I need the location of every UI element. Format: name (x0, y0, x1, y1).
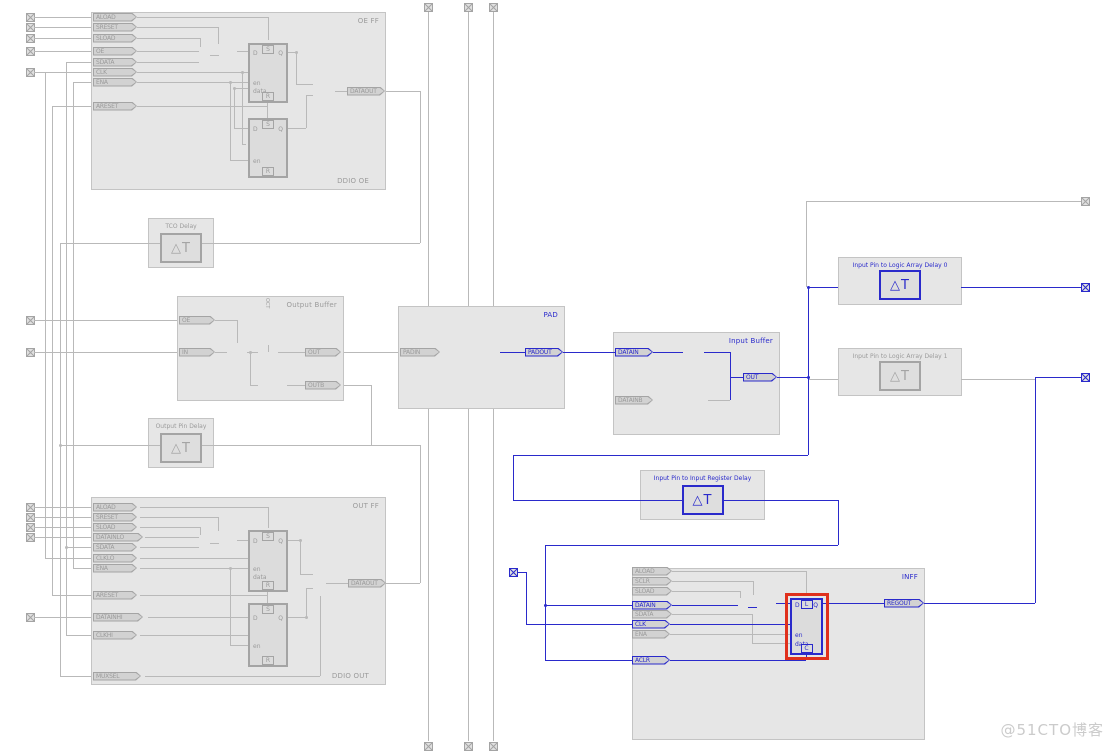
signal-label-text: ACLR (635, 656, 673, 665)
wire (137, 62, 199, 63)
dff-pin-q: Q (278, 127, 283, 133)
dff-oe-ff2[interactable]: DQenSR (248, 118, 288, 178)
signal-label-text: DATAIN (618, 348, 656, 357)
dff-pin-d: D (253, 127, 258, 133)
wire (545, 605, 632, 606)
wire (230, 568, 231, 645)
signal-label-sload[interactable]: SLOAD (93, 34, 137, 43)
signal-label-text: CLK (96, 68, 140, 77)
signal-label-ena[interactable]: ENA (632, 630, 670, 639)
wire (287, 385, 305, 386)
signal-label-text: ENA (96, 78, 140, 87)
signal-label-sdata[interactable]: SDATA (93, 58, 137, 67)
wire (961, 287, 1081, 288)
wire (34, 507, 91, 508)
wire (670, 634, 790, 635)
signal-label-datainhi[interactable]: DATAINHI (93, 613, 143, 622)
signal-label-areset[interactable]: ARESET (93, 102, 137, 111)
signal-label-out[interactable]: OUT (743, 373, 777, 382)
io-port-symbol[interactable] (424, 742, 433, 751)
wire (34, 527, 91, 528)
signal-label-aload[interactable]: ALOAD (93, 13, 137, 22)
delay-symbol-box: △T (160, 433, 202, 463)
wire (300, 540, 301, 574)
wire (513, 500, 838, 501)
signal-label-oe[interactable]: OE (93, 47, 137, 56)
wire (137, 38, 200, 39)
signal-label-text: OE (96, 47, 140, 56)
signal-label-aclr[interactable]: ACLR (632, 656, 670, 665)
dff-clear-box: R (262, 92, 274, 101)
io-port-symbol[interactable] (1081, 197, 1090, 206)
wire (237, 540, 248, 541)
wire (288, 617, 306, 618)
wire (748, 607, 757, 608)
wire-junction (65, 546, 68, 549)
wire (137, 27, 218, 28)
wire (242, 144, 246, 145)
wire (73, 82, 74, 568)
wire (296, 84, 313, 85)
wire (52, 106, 53, 595)
wire (140, 517, 218, 518)
wire (34, 17, 91, 18)
wire (517, 572, 526, 573)
wire (730, 352, 731, 400)
io-port-symbol[interactable] (424, 3, 433, 12)
signal-label-padin[interactable]: PADIN (400, 348, 440, 357)
wire (137, 51, 199, 52)
wire (234, 128, 248, 129)
wire (672, 571, 806, 572)
wire (230, 160, 248, 161)
wire (806, 201, 807, 287)
delay-title: Input Pin to Logic Array Delay 1 (839, 353, 961, 360)
wire-junction (229, 567, 232, 570)
signal-label-datainb[interactable]: DATAINB (615, 396, 653, 405)
wire-junction (229, 81, 232, 84)
wire (237, 320, 238, 343)
signal-label-out[interactable]: OUT (305, 348, 341, 357)
io-port-symbol[interactable] (464, 3, 473, 12)
wire (823, 603, 884, 604)
io-port-symbol[interactable] (489, 3, 498, 12)
wire (215, 320, 237, 321)
wire (237, 51, 248, 52)
block-title: OE FF (358, 17, 379, 25)
signal-label-clk[interactable]: CLK (93, 68, 137, 77)
delay-symbol: △T (171, 441, 191, 456)
dff-pin-en: en (253, 81, 261, 87)
signal-label-dataout[interactable]: DATAOUT (348, 579, 386, 588)
wire-junction (295, 51, 298, 54)
delay-title: TCO Delay (149, 223, 213, 230)
signal-label-text: SLOAD (96, 34, 140, 43)
wire (653, 352, 683, 353)
wire (60, 676, 91, 677)
wire (66, 62, 91, 63)
dff-clear-box: R (262, 167, 274, 176)
signal-label-clk[interactable]: CLK (632, 620, 670, 629)
wire (145, 537, 199, 538)
wire (45, 558, 91, 559)
delay-symbol-box: △T (160, 233, 202, 263)
signal-label-text: ARESET (96, 102, 140, 111)
signal-label-text: DATAINLO (96, 533, 146, 542)
wire (306, 588, 307, 617)
signal-label-text: PADOUT (528, 348, 566, 357)
signal-label-text: ALOAD (96, 503, 140, 512)
signal-label-clklo[interactable]: CLKLO (93, 554, 137, 563)
wire (961, 379, 1035, 380)
wire (420, 91, 421, 243)
signal-label-text: CLKLO (96, 554, 140, 563)
wire (52, 106, 91, 107)
io-port-symbol[interactable] (1081, 373, 1090, 382)
wire (808, 377, 809, 455)
wire (66, 547, 91, 548)
wire (34, 27, 91, 28)
signal-label-text: OUTB (308, 381, 344, 390)
signal-label-sreset[interactable]: SRESET (93, 23, 137, 32)
wire (344, 385, 371, 386)
signal-label-sload[interactable]: SLOAD (632, 587, 672, 596)
wire (140, 635, 250, 636)
signal-label-areset[interactable]: ARESET (93, 591, 137, 600)
signal-label-text: SDATA (635, 610, 675, 619)
wire (140, 527, 200, 528)
signal-label-text: DATAINHI (96, 613, 146, 622)
wire (52, 595, 91, 596)
signal-label-padout[interactable]: PADOUT (525, 348, 563, 357)
signal-label-sdata[interactable]: SDATA (632, 610, 672, 619)
wire (526, 624, 632, 625)
wire (268, 17, 269, 40)
signal-label-outb[interactable]: OUTB (305, 381, 341, 390)
signal-label-datain[interactable]: DATAIN (615, 348, 653, 357)
wire (335, 91, 347, 92)
signal-label-ena[interactable]: ENA (93, 78, 137, 87)
wire (672, 591, 740, 592)
wire (545, 545, 838, 546)
signal-label-text: SLOAD (96, 523, 140, 532)
dff-out-ff1[interactable]: DQendataSR (248, 530, 288, 592)
signal-label-text: ENA (96, 564, 140, 573)
dff-set-box: S (262, 605, 274, 614)
signal-label-text: PADIN (403, 348, 443, 357)
wire (230, 645, 248, 646)
delay-title: Input Pin to Input Register Delay (641, 475, 764, 482)
wire-junction (59, 444, 62, 447)
wire (924, 603, 1035, 604)
signal-label-text: SRESET (96, 23, 140, 32)
wire (513, 455, 514, 500)
dff-pin-q: Q (278, 539, 283, 545)
block-subtitle: DDIO OUT (332, 672, 369, 680)
wire (140, 547, 199, 548)
io-port-symbol[interactable] (1081, 283, 1090, 292)
wire (752, 614, 753, 643)
wire (66, 635, 91, 636)
wire (808, 379, 838, 380)
schematic-canvas: @51CTO博客 OE FFDDIO OEOutput BufferPADInp… (0, 0, 1114, 752)
signal-label-text: SLOAD (635, 587, 675, 596)
wire-junction (305, 616, 308, 619)
wire (218, 517, 219, 531)
wire (234, 88, 248, 89)
signal-label-sload[interactable]: SLOAD (93, 523, 137, 532)
signal-label-text: DATAOUT (351, 579, 389, 588)
wire (34, 320, 177, 321)
dff-oe-ff1[interactable]: DQendataSR (248, 43, 288, 103)
signal-label-text: IN (182, 348, 218, 357)
wire (45, 72, 46, 558)
wire (137, 72, 248, 73)
dff-pin-d: D (253, 616, 258, 622)
wire (60, 243, 420, 244)
delay-symbol: △T (693, 493, 713, 508)
wire (838, 500, 839, 545)
dff-pin-q: Q (278, 51, 283, 57)
signal-label-text: CLK (635, 620, 673, 629)
wire (60, 243, 61, 676)
signal-label-datainlo[interactable]: DATAINLO (93, 533, 143, 542)
delay-symbol-box: △T (879, 270, 921, 300)
wire (306, 588, 313, 589)
wire (740, 591, 741, 598)
signal-label-text: DATAOUT (350, 87, 388, 96)
signal-label-text: SCLR (635, 577, 675, 586)
wire-junction (807, 286, 810, 289)
wire (420, 445, 421, 583)
wire (66, 62, 67, 635)
wire (306, 95, 307, 128)
wire (73, 568, 91, 569)
block-subtitle: DDIO OE (337, 177, 369, 185)
wire (140, 595, 267, 596)
wire-junction (299, 539, 302, 542)
signal-label-text: DATAINB (618, 396, 656, 405)
dff-set-box: S (262, 120, 274, 129)
signal-label-text: ALOAD (635, 567, 675, 576)
delay-symbol-box: △T (682, 485, 724, 515)
signal-label-text: CLKHI (96, 631, 140, 640)
dff-pin-en: en (253, 644, 261, 650)
wire (306, 95, 313, 96)
signal-label-regout[interactable]: REGOUT (884, 599, 924, 608)
wire (34, 617, 91, 618)
delay-symbol-box: △T (879, 361, 921, 391)
wire (145, 676, 320, 677)
wire-junction (544, 604, 547, 607)
delay-title: Input Pin to Logic Array Delay 0 (839, 262, 961, 269)
wire-junction (233, 87, 236, 90)
wire (326, 583, 348, 584)
wire (670, 660, 806, 661)
wire (230, 82, 231, 160)
wire (753, 581, 754, 595)
wire (386, 91, 420, 92)
oct-control-label: OCT (264, 298, 270, 308)
signal-label-ena[interactable]: ENA (93, 564, 137, 573)
wire (200, 38, 201, 47)
wire (200, 527, 201, 535)
signal-label-text: SDATA (96, 543, 140, 552)
block-title: Output Buffer (287, 301, 338, 309)
wire (806, 571, 807, 594)
wire (278, 352, 305, 353)
wire (218, 27, 219, 44)
dff-set-box: S (262, 45, 274, 54)
wire (34, 352, 177, 353)
signal-label-text: REGOUT (887, 599, 927, 608)
wire (777, 377, 808, 378)
wire (708, 400, 730, 401)
wire (344, 352, 398, 353)
wire (234, 88, 235, 128)
block-pad[interactable]: PAD (398, 306, 565, 409)
io-port-symbol[interactable] (464, 742, 473, 751)
block-inff[interactable]: INFF (632, 568, 925, 740)
signal-label-text: OE (182, 316, 218, 325)
wire (806, 201, 1081, 202)
wire (140, 507, 268, 508)
delay-symbol: △T (171, 241, 191, 256)
signal-label-text: OUT (308, 348, 344, 357)
block-title: OUT FF (353, 502, 379, 510)
dff-set-box: S (262, 532, 274, 541)
signal-label-text: SDATA (96, 58, 140, 67)
dff-pin-en: en (253, 159, 261, 165)
wire (73, 82, 91, 83)
wire (545, 545, 546, 660)
wire (137, 106, 267, 107)
signal-label-text: OUT (746, 373, 780, 382)
wire (34, 517, 91, 518)
block-title: INFF (902, 573, 918, 581)
wire-junction (241, 71, 244, 74)
wire (268, 345, 269, 352)
wire (137, 17, 268, 18)
signal-label-dataout[interactable]: DATAOUT (347, 87, 385, 96)
wire (808, 287, 838, 288)
wire (210, 55, 219, 56)
signal-label-text: ALOAD (96, 13, 140, 22)
wire (670, 624, 790, 625)
wire (1035, 377, 1036, 603)
signal-label-text: MUXSEL (96, 672, 144, 681)
wire (1035, 377, 1081, 378)
wire-junction (249, 351, 252, 354)
dff-pin-q: Q (278, 616, 283, 622)
signal-label-in[interactable]: IN (179, 348, 215, 357)
wire (386, 583, 420, 584)
signal-label-sdata[interactable]: SDATA (93, 543, 137, 552)
dff-clear-box: R (262, 656, 274, 665)
wire (672, 581, 753, 582)
wire (513, 455, 808, 456)
dff-pin-d: D (253, 51, 258, 57)
signal-label-text: DATAIN (635, 601, 675, 610)
wire (704, 352, 730, 353)
wire (250, 352, 251, 385)
dff-clear-box: R (262, 581, 274, 590)
signal-label-sreset[interactable]: SRESET (93, 513, 137, 522)
wire (267, 102, 268, 118)
wire (500, 352, 525, 353)
wire (300, 574, 313, 575)
dff-out-ff2[interactable]: DQenSR (248, 603, 288, 667)
wire (808, 287, 809, 379)
wire (250, 385, 258, 386)
signal-label-text: ENA (635, 630, 673, 639)
wire (34, 537, 91, 538)
wire (34, 72, 91, 73)
wire (672, 605, 738, 606)
wire (60, 445, 420, 446)
wire (672, 614, 752, 615)
block-title: PAD (543, 311, 558, 319)
dff-pin-d: D (253, 539, 258, 545)
block-title: Input Buffer (729, 337, 773, 345)
signal-label-oe[interactable]: OE (179, 316, 215, 325)
wire (730, 377, 743, 378)
wire-junction (807, 376, 810, 379)
wire (526, 572, 527, 624)
delay-title: Output Pin Delay (149, 423, 213, 430)
wire (34, 38, 91, 39)
wire (148, 617, 248, 618)
delay-symbol: △T (890, 278, 910, 293)
wire (563, 352, 615, 353)
signal-label-datain[interactable]: DATAIN (632, 601, 672, 610)
signal-label-aload[interactable]: ALOAD (93, 503, 137, 512)
wire (545, 660, 632, 661)
selection-highlight-rect[interactable] (785, 593, 829, 660)
wire (320, 596, 321, 676)
delay-symbol: △T (890, 369, 910, 384)
dff-pin-en: en (253, 567, 261, 573)
wire (288, 128, 306, 129)
signal-label-muxsel[interactable]: MUXSEL (93, 672, 141, 681)
wire (210, 543, 219, 544)
watermark: @51CTO博客 (1000, 719, 1104, 740)
signal-label-text: SRESET (96, 513, 140, 522)
signal-label-sclr[interactable]: SCLR (632, 577, 672, 586)
wire (140, 558, 250, 559)
wire (296, 52, 297, 84)
wire (268, 507, 269, 528)
io-port-symbol[interactable] (489, 742, 498, 751)
signal-label-text: ARESET (96, 591, 140, 600)
wire (371, 385, 372, 445)
signal-label-clkhi[interactable]: CLKHI (93, 631, 137, 640)
signal-label-aload[interactable]: ALOAD (632, 567, 672, 576)
wire (34, 51, 91, 52)
